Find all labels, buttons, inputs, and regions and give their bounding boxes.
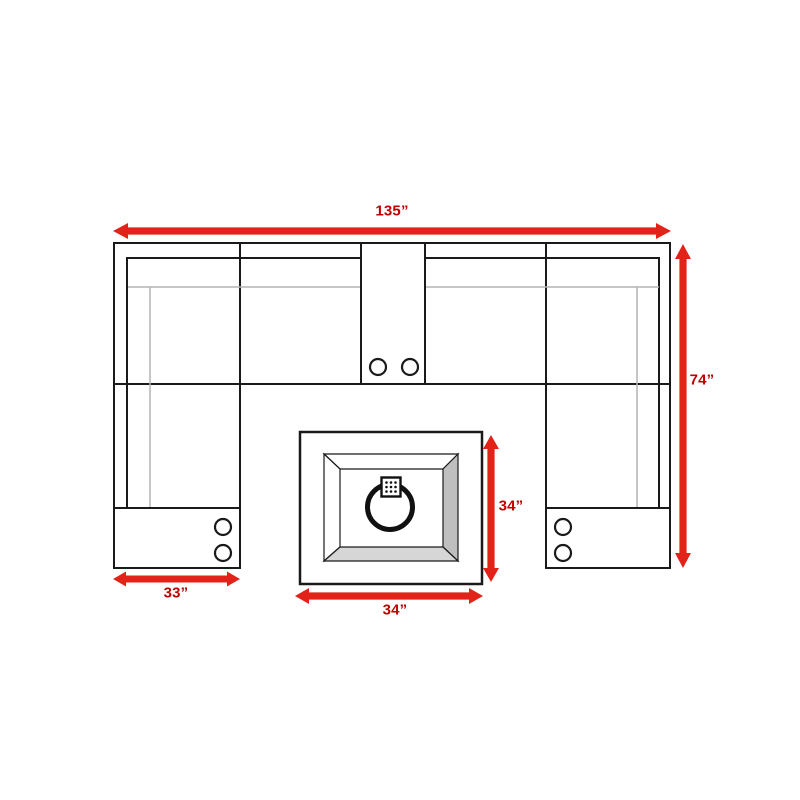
- floorplan-drawing: [0, 0, 800, 800]
- dim-label-table-width: 34”: [383, 602, 408, 619]
- dim-label-overall-width: 135”: [375, 203, 408, 220]
- bevel-bottom: [324, 547, 458, 561]
- dim-label-overall-depth: 74”: [690, 372, 715, 389]
- bevel-top: [324, 454, 458, 469]
- bevel-right: [443, 454, 458, 561]
- left-arm-cup-holder-top-icon: [215, 519, 231, 535]
- fire-pit-table: [300, 432, 482, 584]
- arrow-overall-depth: [675, 244, 691, 568]
- right-arm-cup-holder-top-icon: [555, 519, 571, 535]
- dim-label-arm-width: 33”: [164, 585, 189, 602]
- arrow-table-depth: [483, 435, 499, 582]
- dim-label-table-depth: 34”: [499, 498, 524, 515]
- right-arm-cup-holder-bottom-icon: [555, 545, 571, 561]
- left-arm-cup-holder-bottom-icon: [215, 545, 231, 561]
- burner-valve-icon: [382, 478, 401, 497]
- sofa-dimension-diagram: 135” 74” 33” 34” 34”: [0, 0, 800, 800]
- console-cup-holder-right-icon: [402, 359, 418, 375]
- arrow-overall-width: [113, 223, 671, 239]
- bevel-left: [324, 454, 340, 561]
- console-cup-holder-left-icon: [370, 359, 386, 375]
